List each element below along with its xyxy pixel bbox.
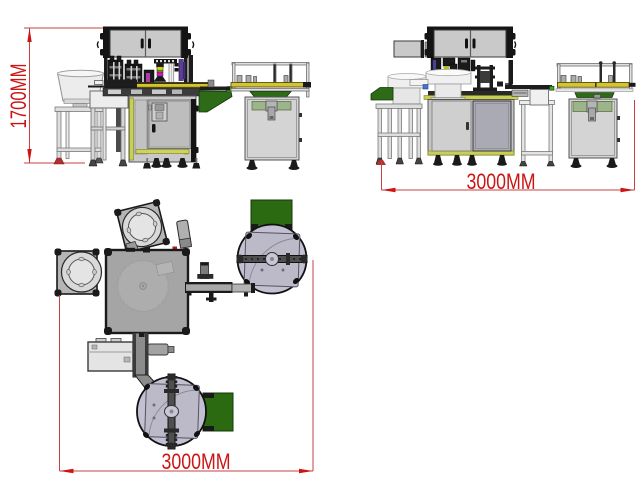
svg-text:3000MM: 3000MM xyxy=(162,449,231,474)
svg-text:1700MM: 1700MM xyxy=(6,64,31,129)
svg-text:3000MM: 3000MM xyxy=(467,169,536,194)
